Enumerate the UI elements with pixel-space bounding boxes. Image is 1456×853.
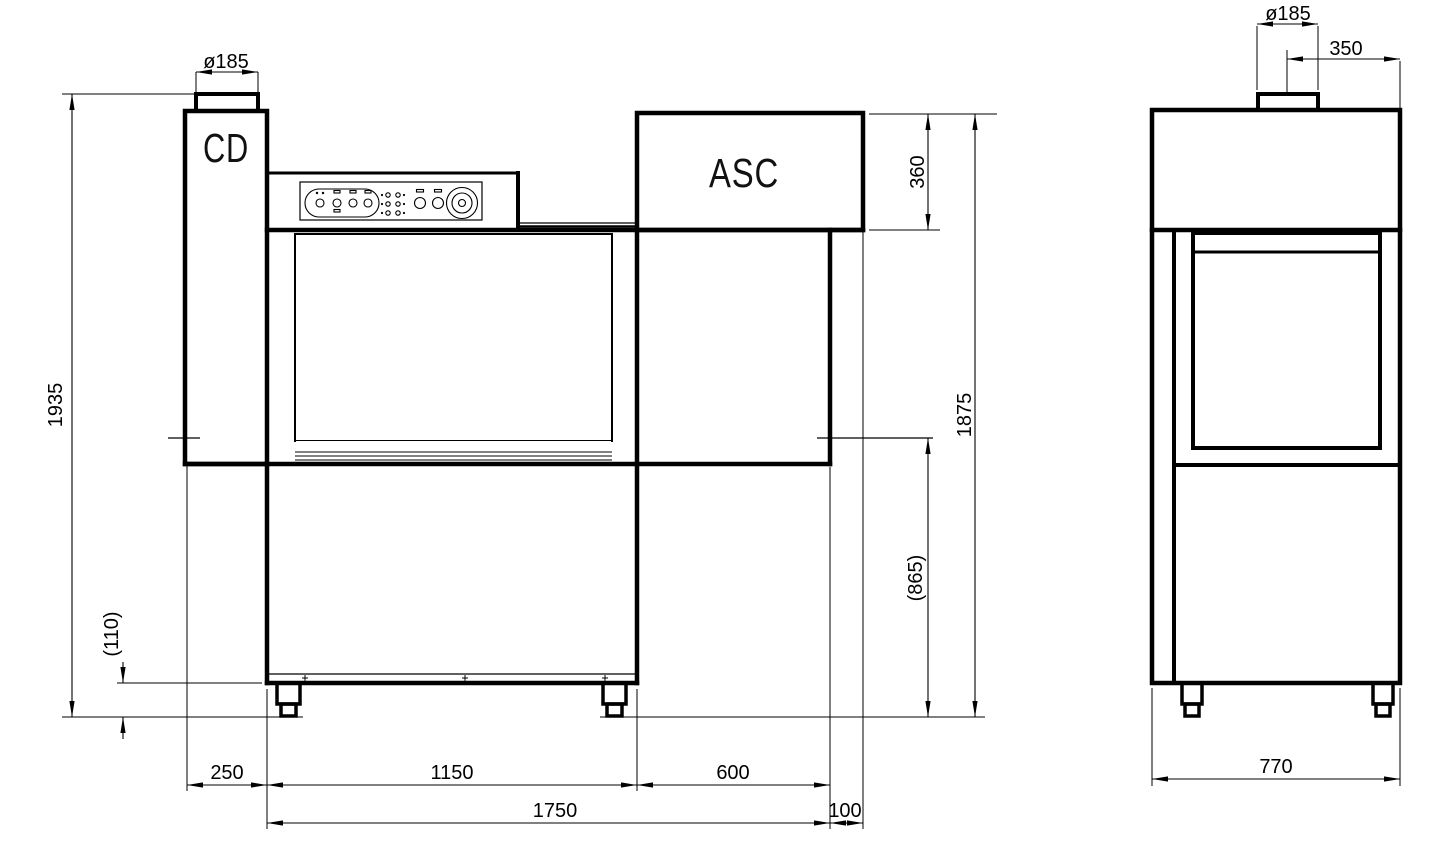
dial-knob	[452, 193, 472, 213]
dial-center	[459, 200, 466, 207]
front-view: CD	[168, 94, 933, 716]
panel-button	[364, 199, 372, 207]
led-dot	[381, 212, 383, 214]
panel-button	[349, 199, 357, 207]
led	[386, 193, 390, 197]
panel-button-large	[433, 198, 444, 209]
front-feet	[277, 683, 626, 716]
indicator-bar	[334, 191, 340, 194]
foot	[277, 683, 300, 704]
panel-face	[300, 182, 482, 220]
indicator-bar	[417, 190, 424, 193]
extension-lines	[62, 72, 997, 829]
dim-plinth-label: (110)	[101, 611, 123, 656]
dim-left-module-label: 250	[210, 762, 243, 784]
led-dot	[403, 194, 405, 196]
panel-button	[333, 199, 341, 207]
side-view	[1152, 94, 1400, 716]
dim-flue-front-label: ø185	[203, 51, 249, 73]
dim-depth-label: 770	[1259, 756, 1292, 778]
led-dot	[381, 203, 383, 205]
foot-pad	[1376, 704, 1390, 716]
led	[396, 193, 400, 197]
indicator-dot	[316, 192, 318, 194]
side-dimensions: ø185 350 770	[1152, 3, 1400, 786]
side-feet	[1182, 683, 1393, 716]
dim-hood-height-label: 360	[907, 155, 929, 188]
dim-total-height-label: 1935	[45, 383, 67, 428]
led	[396, 202, 400, 206]
dial-surround	[447, 188, 478, 219]
indicator-bar	[435, 190, 442, 193]
panel-button	[316, 199, 324, 207]
extension-lines	[1152, 26, 1400, 786]
foot-pad	[281, 704, 296, 716]
led	[386, 202, 390, 206]
base-screw-marks	[302, 675, 608, 681]
led	[386, 211, 390, 215]
dim-overhang-label: 100	[828, 800, 861, 822]
side-flue-cap	[1258, 94, 1318, 110]
panel-button-large	[415, 198, 426, 209]
side-body	[1152, 110, 1400, 683]
indicator-bar	[350, 191, 356, 194]
dim-center-module-label: 1150	[430, 762, 473, 784]
side-door-panel	[1193, 233, 1380, 448]
foot-pad	[1185, 704, 1199, 716]
foot-pad	[607, 704, 622, 716]
front-flue-cap	[196, 94, 258, 111]
indicator-dot	[322, 192, 324, 194]
dim-flue-side-label: ø185	[1265, 3, 1311, 25]
led-dot	[403, 203, 405, 205]
led-cluster	[381, 193, 405, 215]
dim-flue-offset-label: 350	[1329, 38, 1362, 60]
foot	[1182, 683, 1202, 704]
led-dot	[381, 194, 383, 196]
asc-label: ASC	[709, 150, 779, 196]
control-panel	[267, 173, 518, 230]
indicator-bar	[365, 191, 371, 194]
foot	[603, 683, 626, 704]
indicator-bar	[334, 210, 340, 213]
dim-worktop-height-label: (865)	[905, 555, 927, 602]
dim-right-module-label: 600	[716, 762, 749, 784]
foot	[1373, 683, 1393, 704]
led	[396, 211, 400, 215]
technical-drawing-canvas: CD	[0, 0, 1456, 853]
led-dot	[403, 212, 405, 214]
cd-label: CD	[203, 125, 249, 171]
dim-machine-height-label: 1875	[954, 393, 976, 438]
dim-overall-length-label: 1750	[533, 800, 578, 822]
